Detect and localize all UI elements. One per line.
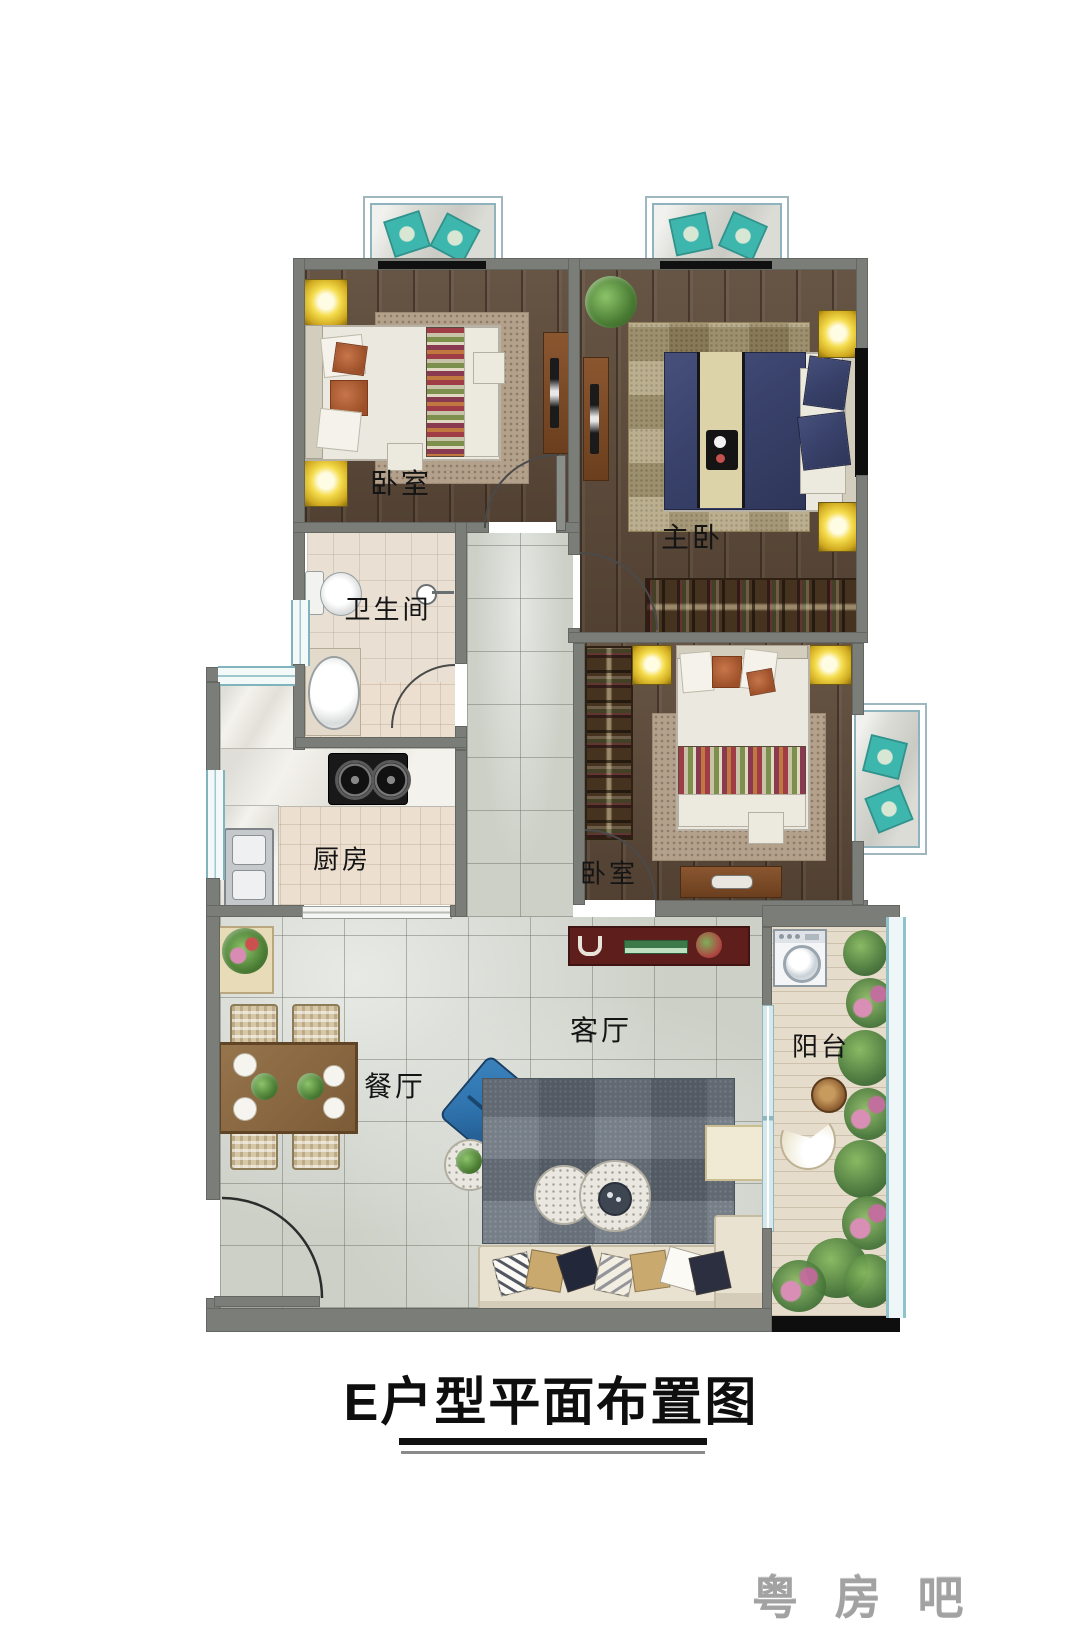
door-arc-bedroom1: [485, 455, 558, 528]
floor-plan-canvas: 卧室 主卧 卫生间 厨房 卧室 客厅 餐厅 阳台 E户型平面布置图 粤 房 吧: [0, 0, 1080, 1642]
watermark: 粤 房 吧: [752, 1562, 976, 1628]
room-label-kitchen: 厨房: [313, 840, 371, 877]
room-label-master: 主卧: [661, 516, 723, 556]
room-label-dining: 餐厅: [364, 1065, 426, 1105]
title-underline-thin: [401, 1451, 705, 1454]
title-underline-thick: [399, 1438, 707, 1445]
room-label-balcony: 阳台: [792, 1027, 850, 1064]
door-arc-master: [580, 553, 657, 630]
door-arc-entry: [222, 1198, 322, 1298]
room-label-living: 客厅: [570, 1009, 632, 1049]
room-label-bedroom1: 卧室: [370, 462, 432, 502]
room-label-bedroom2: 卧室: [580, 854, 638, 891]
room-label-bathroom: 卫生间: [344, 590, 431, 627]
plan-title: E户型平面布置图: [344, 1360, 759, 1435]
door-arc-bathroom: [392, 665, 455, 728]
